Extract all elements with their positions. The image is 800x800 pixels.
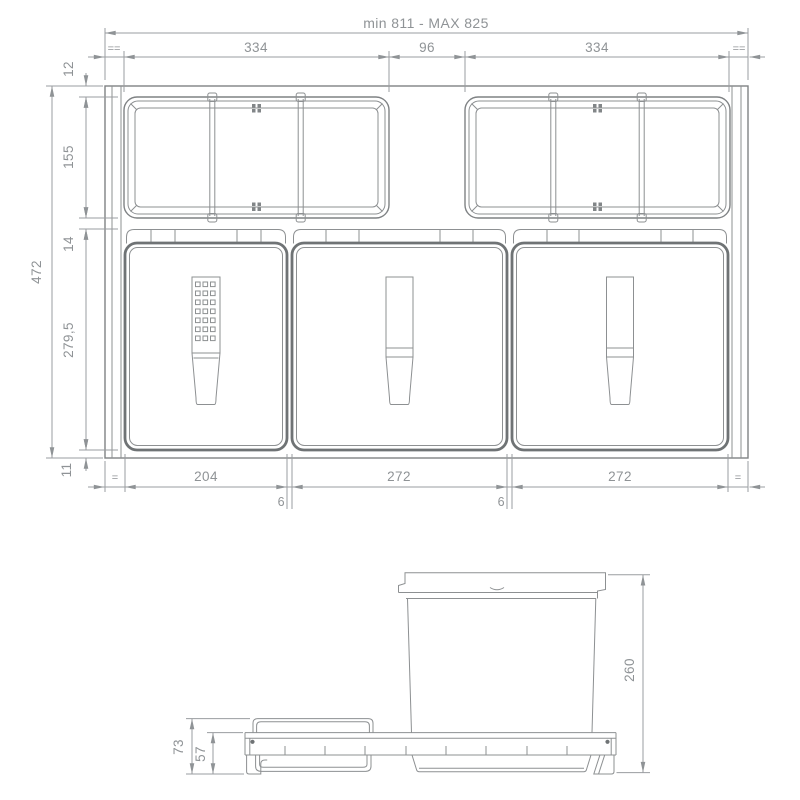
lid-detent — [490, 588, 504, 590]
tray-left-vent-marks — [252, 104, 261, 211]
dim-bin-middle-width: 272 — [387, 469, 411, 484]
waste-bin-profile — [399, 573, 606, 772]
bin-middle-handle — [386, 277, 413, 405]
dim-tray-total-height: 73 — [171, 739, 186, 755]
bin-right-handle — [607, 277, 634, 405]
dim-bottom-rim: 11 — [59, 463, 74, 478]
dimensions-side: 260 73 57 — [171, 575, 650, 774]
bin-small-handle — [192, 277, 220, 405]
dim-equal-bottom-left: = — [112, 472, 118, 484]
rail-slots — [285, 746, 567, 755]
rail-screw-right — [605, 740, 609, 744]
drawer-frame — [105, 86, 748, 458]
dim-top-rim: 12 — [61, 61, 76, 77]
dim-bin-right-width: 272 — [608, 469, 632, 484]
cad-drawing: min 811 - MAX 825 == 334 96 334 == 472 1… — [0, 0, 800, 800]
side-view: 260 73 57 — [171, 573, 650, 774]
dim-tray-left-width: 334 — [244, 40, 268, 55]
tray-right — [465, 93, 730, 222]
dim-bin-small-width: 204 — [194, 469, 218, 484]
top-view: min 811 - MAX 825 == 334 96 334 == 472 1… — [29, 15, 765, 509]
dim-tray-depth: 155 — [61, 145, 76, 169]
dim-mid-gap: 14 — [61, 236, 76, 252]
bin-small — [125, 230, 287, 451]
bin-right — [512, 230, 728, 451]
rail-screw-left — [250, 740, 254, 744]
dim-center-gap: 96 — [419, 40, 435, 55]
frame-outline — [105, 86, 748, 458]
dim-gap-left: 6 — [278, 495, 285, 509]
dim-equal-bottom-right: = — [735, 472, 741, 484]
dim-equal-top-right: == — [733, 43, 746, 55]
dim-overall-height: 472 — [29, 260, 44, 284]
dim-overall-width: min 811 - MAX 825 — [363, 15, 489, 31]
dim-bin-depth: 279,5 — [61, 322, 76, 358]
dim-gap-right: 6 — [498, 495, 505, 509]
tray-right-vent-marks — [593, 104, 602, 211]
bin-middle — [292, 230, 507, 451]
dim-rail-height: 57 — [193, 746, 208, 762]
handle-vent-grid — [196, 282, 216, 341]
shallow-tray-profile — [253, 719, 373, 772]
dimensions-bottom-width: = 204 272 272 = 6 6 — [88, 454, 765, 509]
dim-tray-right-width: 334 — [585, 40, 609, 55]
dim-bin-height: 260 — [622, 658, 637, 682]
dimensions-top-width: min 811 - MAX 825 == 334 96 334 == — [88, 15, 765, 92]
tray-left — [124, 93, 389, 222]
dim-equal-top-left: == — [108, 43, 121, 55]
